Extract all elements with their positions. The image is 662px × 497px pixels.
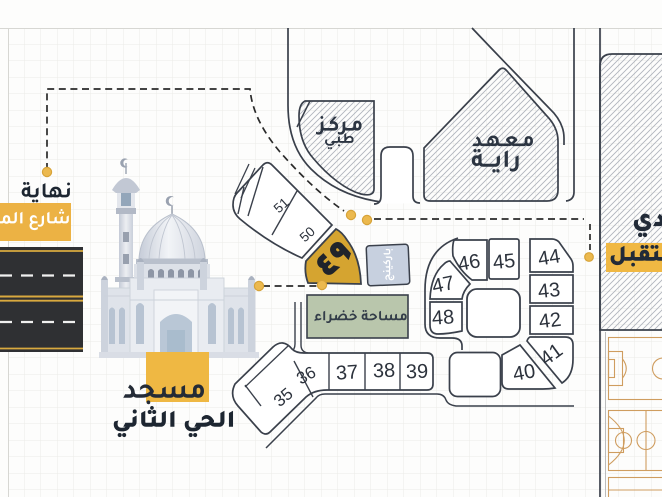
svg-text:48: 48 bbox=[431, 306, 455, 329]
svg-text:46: 46 bbox=[456, 250, 482, 276]
svg-text:37: 37 bbox=[335, 361, 359, 384]
svg-text:40: 40 bbox=[511, 360, 537, 386]
svg-text:42: 42 bbox=[538, 309, 563, 334]
svg-text:38: 38 bbox=[373, 360, 396, 383]
svg-text:45: 45 bbox=[492, 250, 516, 274]
svg-text:39: 39 bbox=[406, 361, 429, 384]
svg-text:43: 43 bbox=[537, 279, 561, 303]
svg-text:44: 44 bbox=[536, 245, 561, 270]
svg-text:47: 47 bbox=[430, 272, 456, 298]
